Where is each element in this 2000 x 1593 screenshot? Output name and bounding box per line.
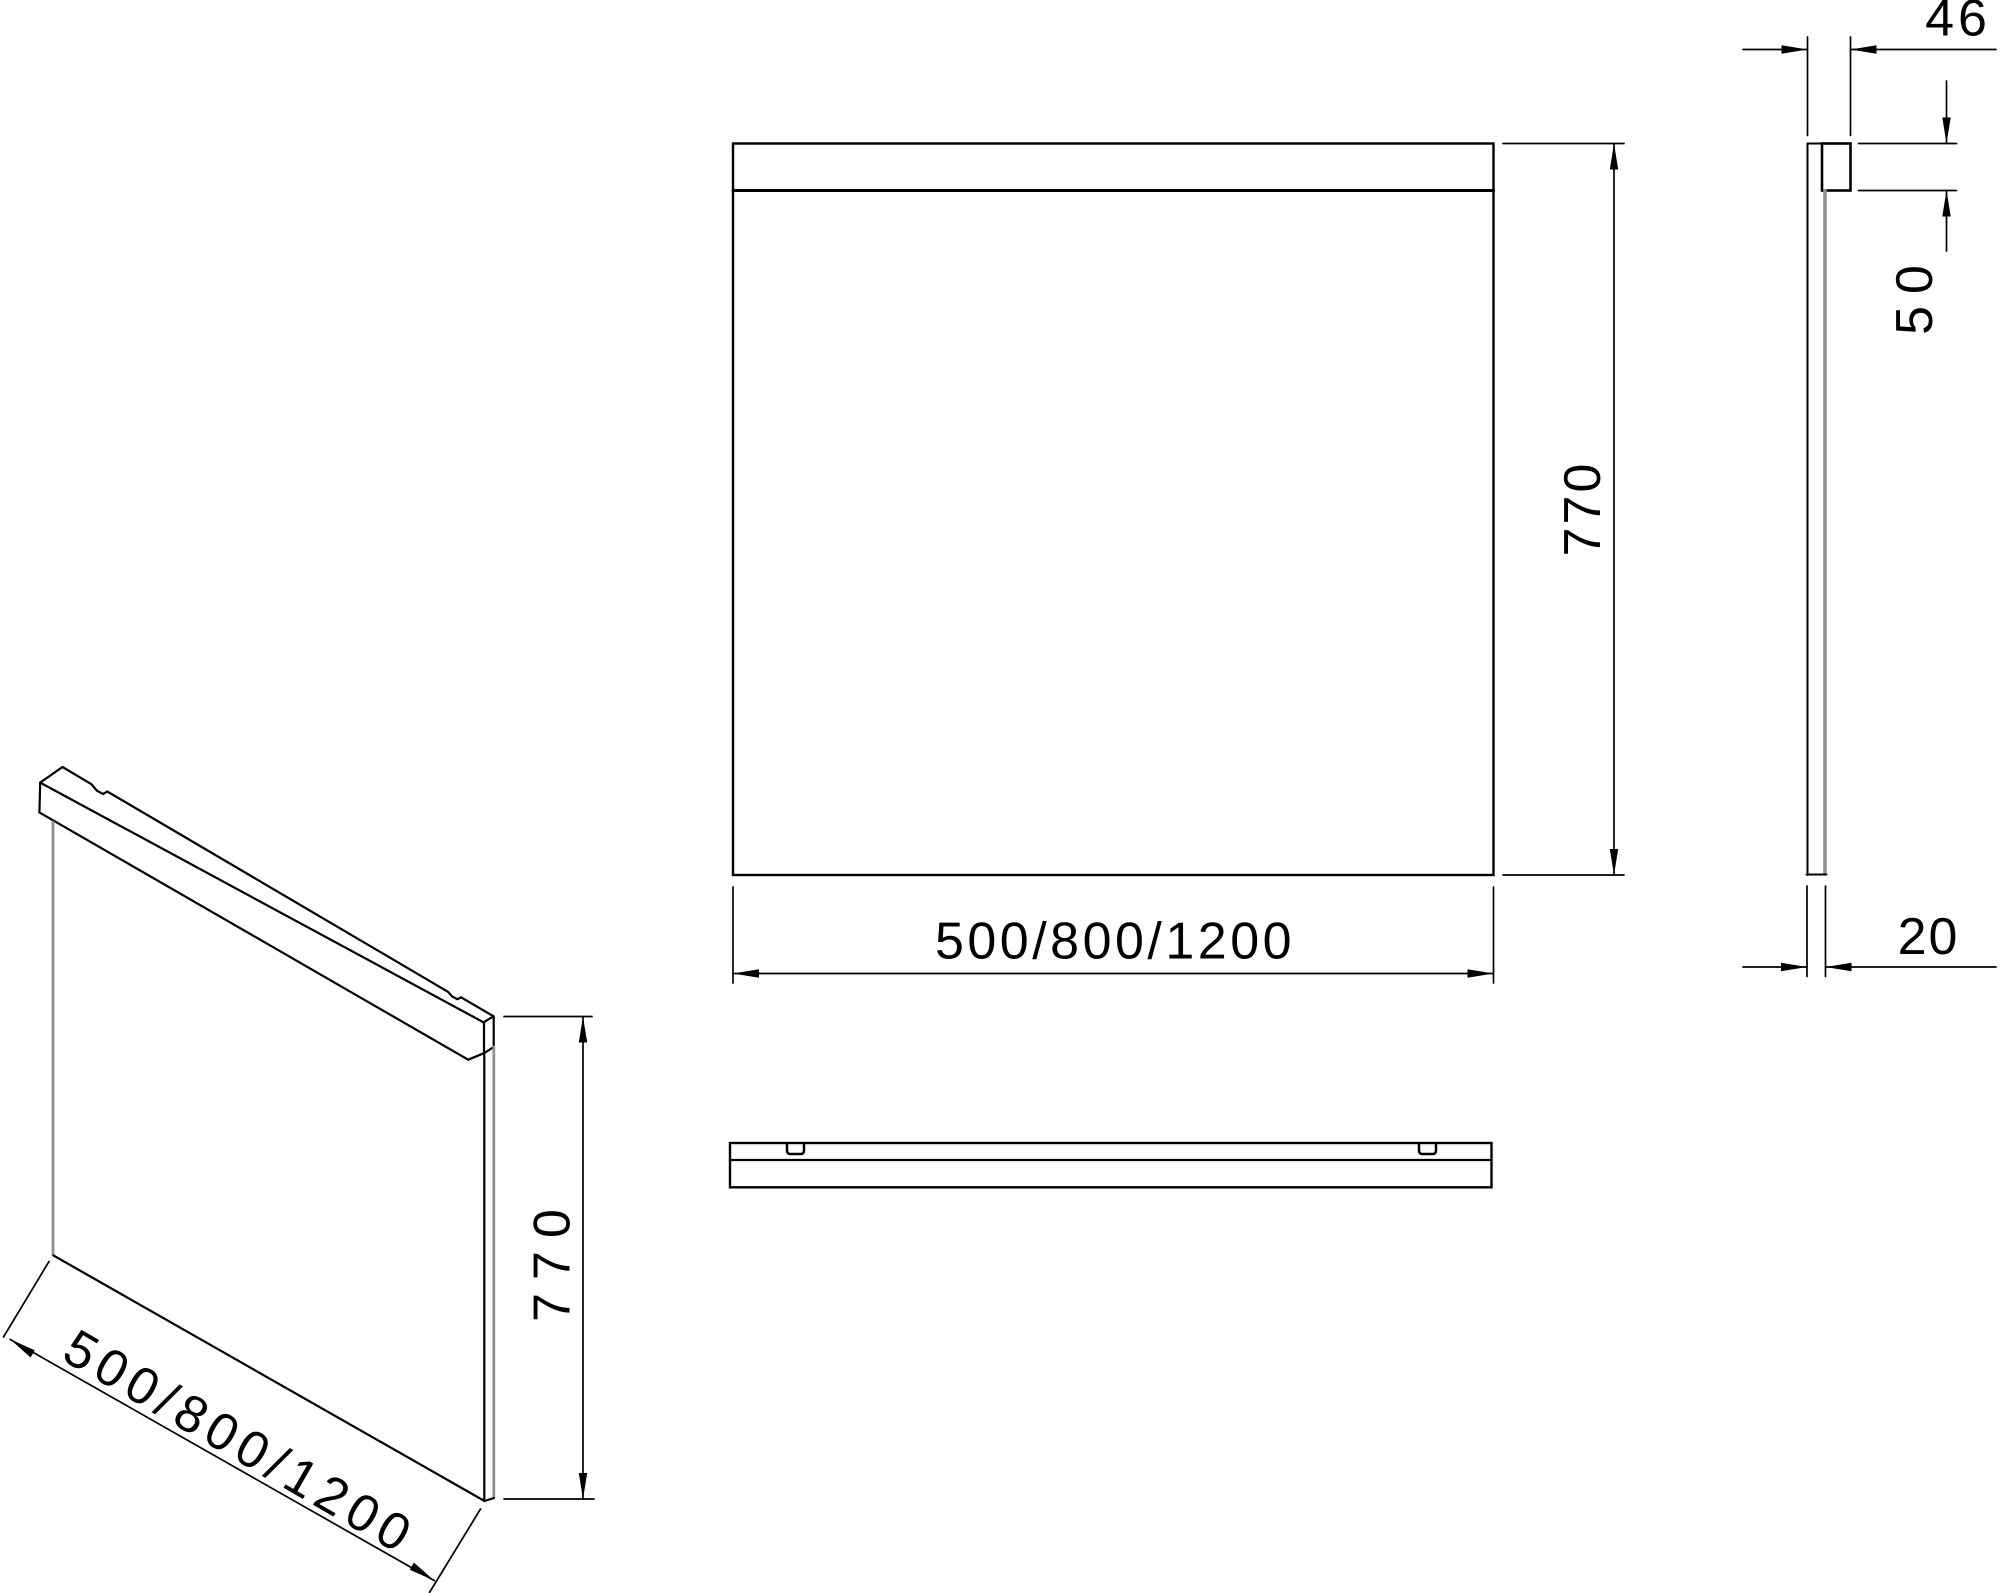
svg-text:500/800/1200: 500/800/1200 — [935, 913, 1295, 971]
svg-text:50: 50 — [1886, 253, 1944, 335]
svg-text:20: 20 — [1898, 908, 1960, 966]
svg-text:46: 46 — [1925, 0, 1991, 48]
svg-text:770: 770 — [524, 1196, 582, 1322]
svg-text:500/800/1200: 500/800/1200 — [54, 1319, 426, 1567]
svg-text:770: 770 — [1554, 461, 1612, 557]
